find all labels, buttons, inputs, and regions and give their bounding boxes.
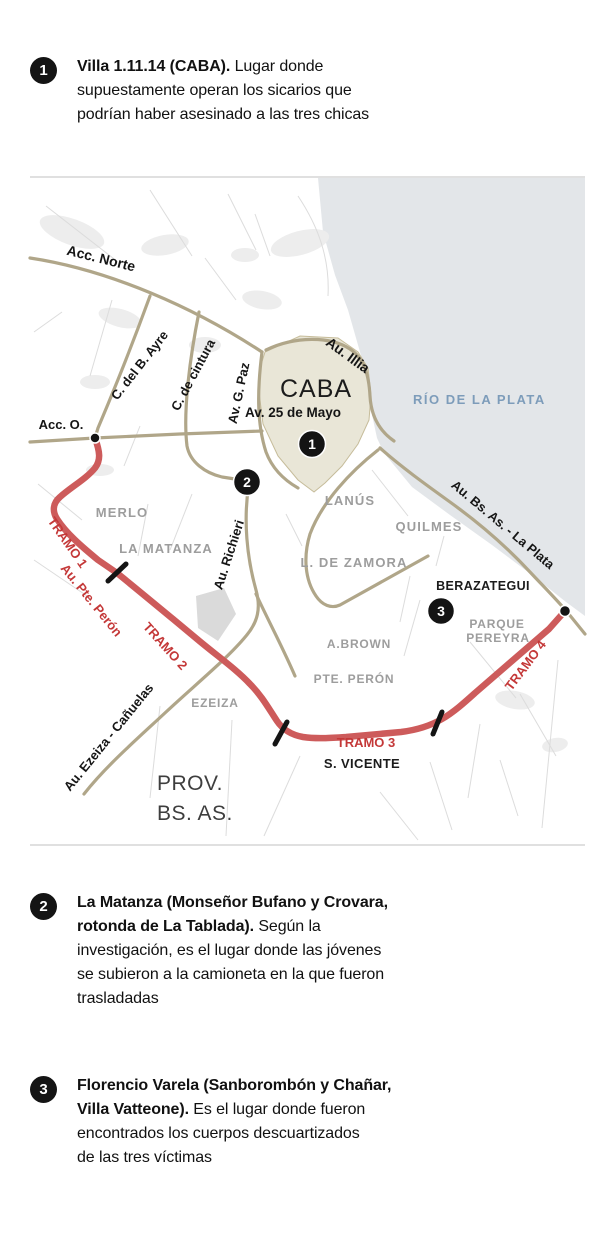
map-label-av-25-de-mayo: Av. 25 de Mayo — [245, 405, 341, 420]
map-marker-2: 2 — [234, 469, 261, 496]
map-label-quilmes: QUILMES — [396, 519, 463, 534]
map-label-ezeiza: EZEIZA — [191, 696, 238, 710]
map-label-parque-pereyra-1: PARQUE — [469, 617, 524, 631]
map-label-lanus: LANÚS — [325, 493, 375, 508]
map-label-rio-de-la-plata: RÍO DE LA PLATA — [413, 392, 546, 407]
svg-text:3: 3 — [437, 603, 445, 619]
ezeiza-airport-patch — [196, 588, 236, 641]
map-label-au-ezeiza-canuelas: Au. Ezeiza - Cañuelas — [61, 681, 157, 794]
map-label-a-brown: A.BROWN — [327, 637, 391, 651]
map-label-merlo: MERLO — [96, 505, 148, 520]
route-label-tramo3: TRAMO 3 — [337, 735, 396, 750]
map-marker-1: 1 — [299, 431, 326, 458]
route-start-dot — [90, 433, 100, 443]
map-label-l-de-zamora: L. DE ZAMORA — [300, 555, 407, 570]
route-end-dot — [560, 606, 571, 617]
svg-text:1: 1 — [308, 436, 316, 452]
svg-text:2: 2 — [243, 474, 251, 490]
map-label-parque-pereyra-2: PEREYRA — [466, 631, 530, 645]
map-label-s-vicente: S. VICENTE — [324, 756, 400, 771]
infographic-page: 1 Villa 1.11.14 (CABA). Lugar donde supu… — [0, 0, 602, 1234]
map-label-acc-norte: Acc. Norte — [65, 242, 137, 275]
map-label-au-richieri: Au. Richieri — [210, 518, 247, 591]
map-svg: Acc. Norte C. del B. Ayre C. de cintura … — [0, 0, 602, 1234]
road-richieri-spur — [256, 594, 295, 676]
road-acc-oeste — [30, 431, 262, 442]
map-label-c-del-b-ayre: C. del B. Ayre — [108, 328, 171, 403]
map-label-pte-peron: PTE. PERÓN — [314, 671, 395, 686]
map-label-la-matanza: LA MATANZA — [119, 541, 213, 556]
map-label-acc-o: Acc. O. — [39, 417, 84, 432]
map-label-prov-1: PROV. — [157, 772, 223, 795]
map-marker-3: 3 — [428, 598, 455, 625]
map-label-caba: CABA — [280, 375, 352, 403]
map-label-prov-2: BS. AS. — [157, 802, 233, 825]
map-label-berazategui: BERAZATEGUI — [436, 579, 530, 593]
